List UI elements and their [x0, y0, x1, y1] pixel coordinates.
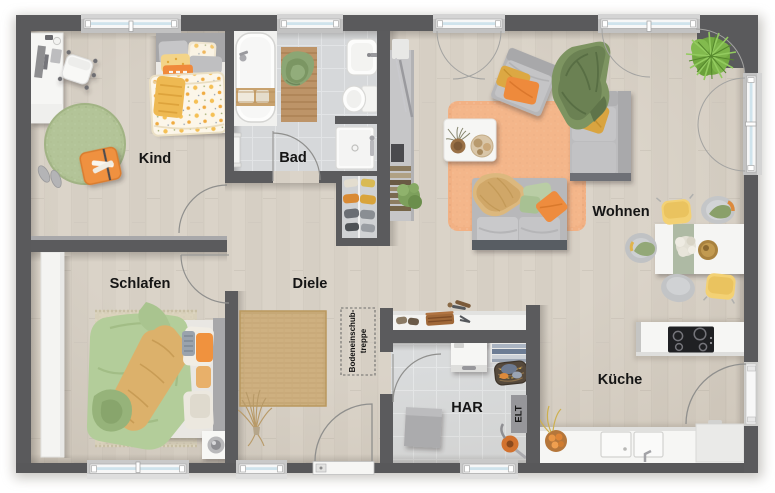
svg-text:Küche: Küche	[598, 372, 643, 388]
svg-text:Kind: Kind	[139, 151, 171, 167]
svg-text:HAR: HAR	[451, 400, 483, 416]
svg-text:Bodeneinschub-: Bodeneinschub-	[348, 309, 357, 372]
svg-text:Schlafen: Schlafen	[110, 276, 171, 292]
svg-text:Diele: Diele	[293, 276, 328, 292]
svg-text:Bad: Bad	[279, 150, 307, 166]
svg-text:ELT: ELT	[514, 405, 525, 422]
svg-text:Wohnen: Wohnen	[592, 204, 649, 220]
svg-text:treppe: treppe	[359, 328, 368, 353]
